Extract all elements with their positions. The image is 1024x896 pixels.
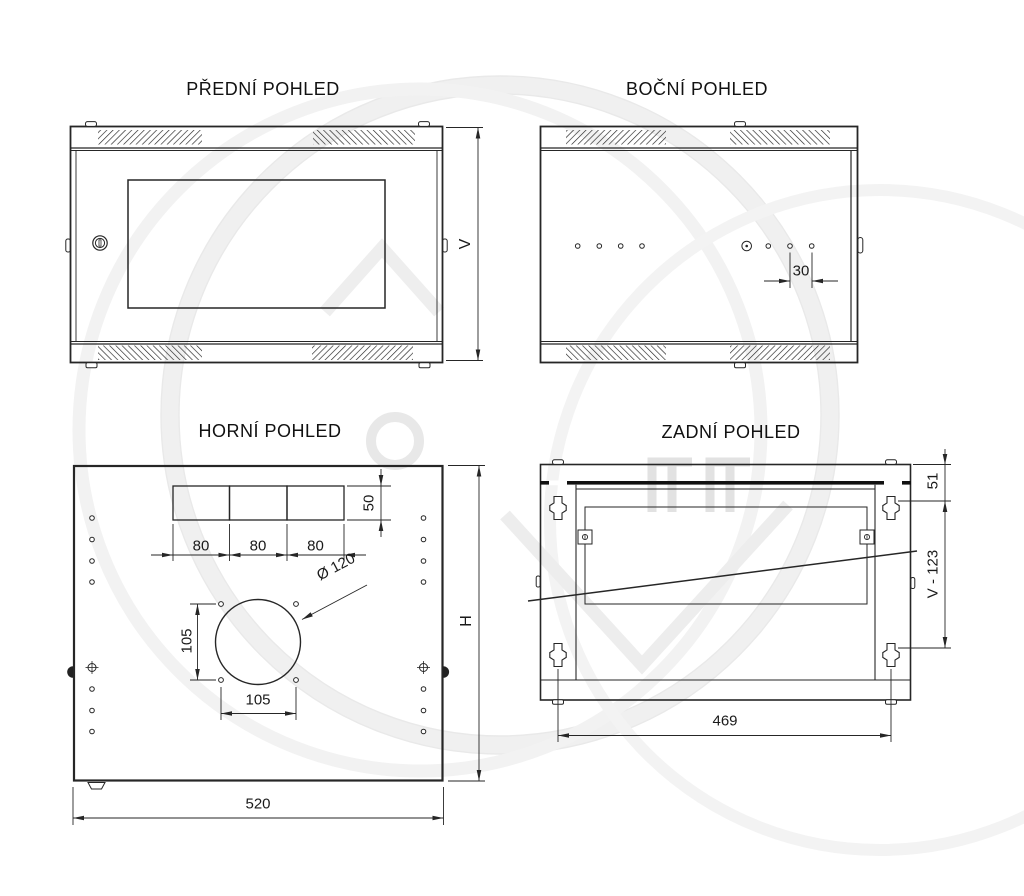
dim-label-80-2: 80 xyxy=(250,539,267,554)
foot xyxy=(88,783,105,790)
vent-strip xyxy=(566,130,666,145)
datum-hole xyxy=(742,241,752,251)
foot xyxy=(419,363,430,368)
dim-label-105-vertical: 105 xyxy=(180,628,195,653)
hinge-tab xyxy=(911,578,915,589)
screw-bump xyxy=(553,460,564,465)
top-rail-bar xyxy=(540,481,911,485)
rear-view-title: ZADNÍ POHLED xyxy=(661,423,800,441)
cable-slot xyxy=(230,486,288,520)
vent-strip xyxy=(566,346,666,361)
cable-slot xyxy=(287,486,344,520)
vent-strip xyxy=(312,346,413,361)
keyhole-slot xyxy=(883,497,899,520)
screw-bump xyxy=(419,122,430,127)
keyhole-slot xyxy=(550,644,566,667)
keyhole-slot xyxy=(883,644,899,667)
foot xyxy=(735,363,746,368)
dim-label-80-3: 80 xyxy=(307,539,324,554)
screw-bump xyxy=(886,460,897,465)
dim-label-51: 51 xyxy=(926,473,941,490)
screw-bump xyxy=(735,122,746,127)
rear-view xyxy=(528,449,951,742)
dim-label-V-123: V - 123 xyxy=(926,550,941,598)
hinge-tab xyxy=(443,666,449,678)
vent-strip xyxy=(313,130,415,145)
vent-strip xyxy=(730,130,830,145)
panel-screw-right xyxy=(860,530,874,544)
door-lock-icon xyxy=(93,236,107,250)
latch-tab xyxy=(858,238,863,254)
dim-label-50: 50 xyxy=(362,495,377,512)
vent-strip xyxy=(98,346,202,361)
foot xyxy=(86,363,97,368)
hinge-tab xyxy=(67,666,73,678)
dim-diameter-leader xyxy=(302,585,367,620)
dim-label-80-1: 80 xyxy=(193,539,210,554)
rail-holes-right xyxy=(417,516,430,734)
vent-strip xyxy=(730,346,830,361)
side-view-title: BOČNÍ POHLED xyxy=(626,80,768,98)
hinge-tab xyxy=(536,576,540,587)
panel-screw-left xyxy=(578,530,592,544)
top-view-title: HORNÍ POHLED xyxy=(198,422,341,440)
technical-drawing xyxy=(0,0,1024,896)
front-view-title: PŘEDNÍ POHLED xyxy=(186,80,340,98)
screw-bump xyxy=(86,122,97,127)
dim-label-30: 30 xyxy=(793,264,810,279)
dim-label-520: 520 xyxy=(245,797,270,812)
drawing-canvas: PŘEDNÍ POHLED BOČNÍ POHLED HORNÍ POHLED … xyxy=(0,0,1024,896)
dim-label-105-horizontal: 105 xyxy=(245,693,270,708)
dim-label-depth-H: H xyxy=(459,615,475,627)
dim-label-height-V: V xyxy=(458,239,474,250)
dim-label-469: 469 xyxy=(712,714,737,729)
front-view xyxy=(66,122,483,368)
vent-strip xyxy=(98,130,202,145)
